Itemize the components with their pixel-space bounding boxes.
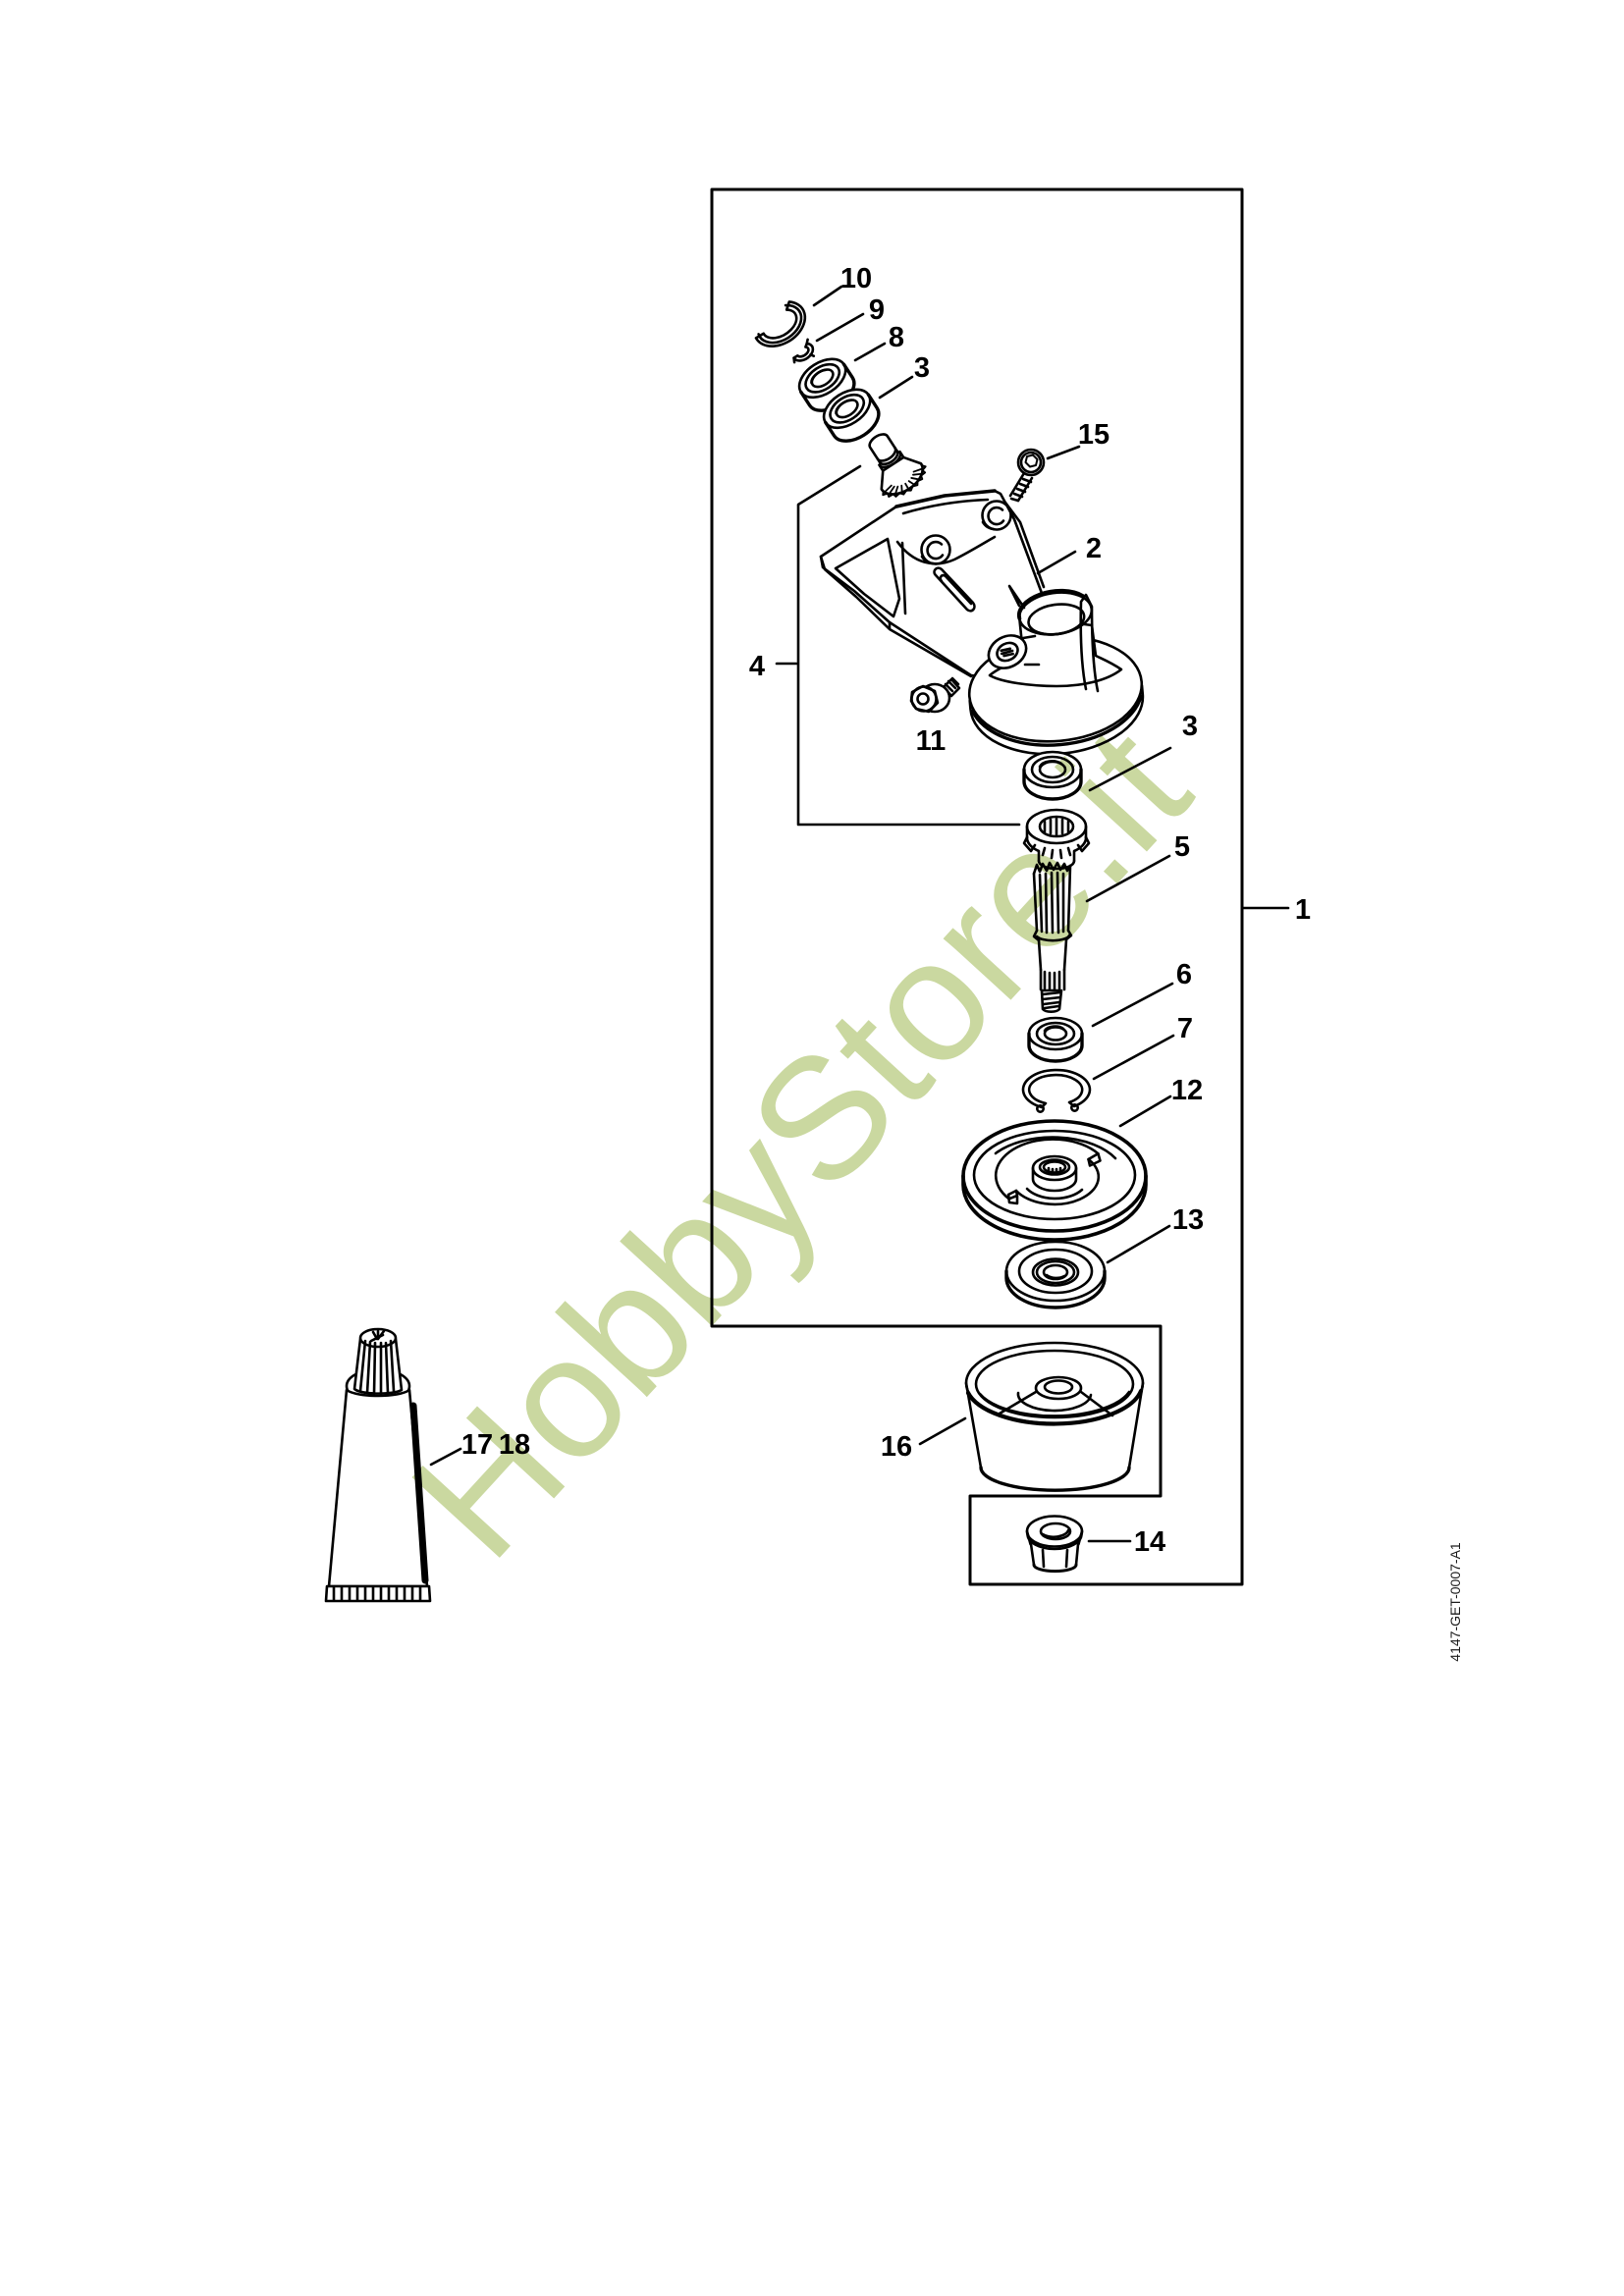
svg-text:7: 7 — [1177, 1013, 1193, 1044]
svg-text:11: 11 — [916, 725, 947, 757]
svg-text:4147-GET-0007-A1: 4147-GET-0007-A1 — [1447, 1542, 1463, 1662]
svg-text:3: 3 — [1182, 711, 1198, 742]
svg-text:2: 2 — [1086, 533, 1102, 564]
svg-text:4: 4 — [749, 651, 765, 682]
svg-text:16: 16 — [881, 1431, 912, 1463]
svg-text:3: 3 — [914, 352, 930, 384]
svg-text:8: 8 — [889, 322, 904, 353]
svg-text:14: 14 — [1134, 1526, 1165, 1558]
svg-text:13: 13 — [1172, 1204, 1204, 1236]
svg-text:15: 15 — [1078, 419, 1110, 451]
svg-text:9: 9 — [869, 294, 885, 326]
svg-text:10: 10 — [840, 263, 872, 294]
svg-text:6: 6 — [1176, 959, 1192, 990]
svg-text:1: 1 — [1295, 894, 1311, 926]
svg-text:12: 12 — [1171, 1075, 1203, 1106]
